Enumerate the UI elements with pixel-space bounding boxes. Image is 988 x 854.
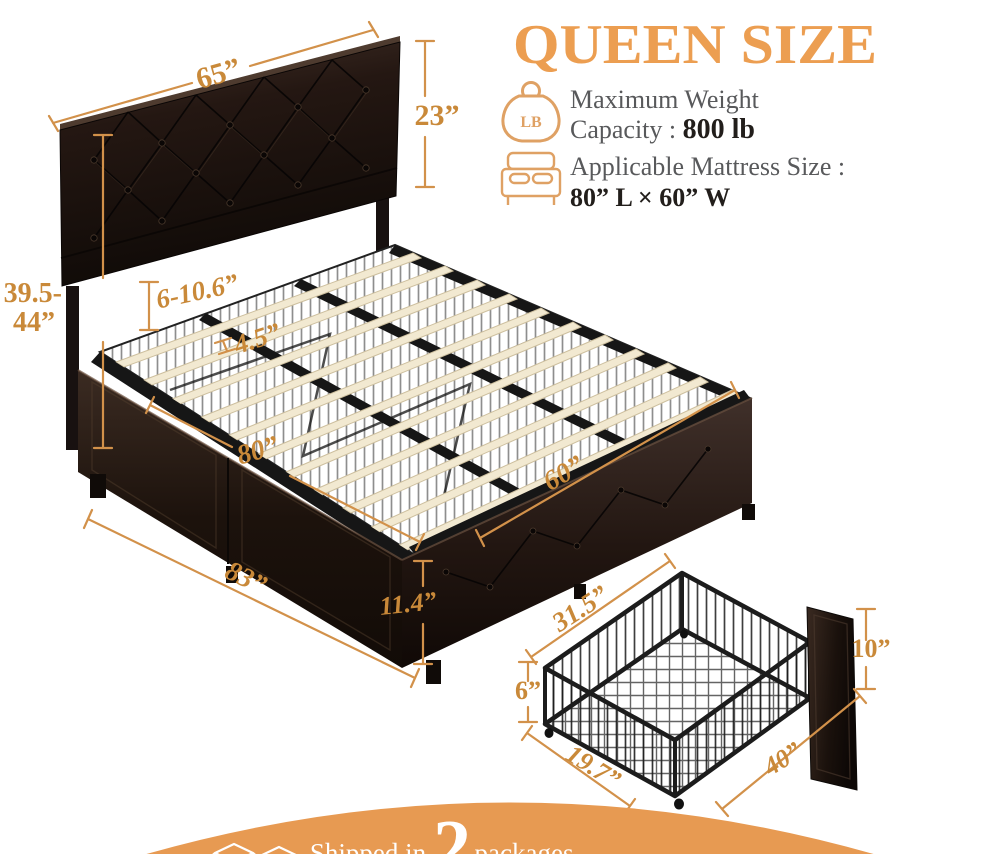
dim-drawer-basket-height: 6” <box>515 662 541 722</box>
drawer-illustration: 31.5” 6” 10” 19.7” 40” <box>515 554 891 816</box>
mattress-spec-value: 80” L × 60” W <box>570 183 730 212</box>
dim-headboard-panel-height: 23” <box>415 41 460 187</box>
dim-drawer-panel-height: 10” <box>852 609 891 689</box>
mattress-size-icon <box>502 153 560 205</box>
mattress-spec-label: Applicable Mattress Size : <box>570 152 845 181</box>
weight-capacity-value: 800 lb <box>683 114 755 145</box>
shipping-package-count: 2 <box>433 805 471 854</box>
product-diagram: 65” 23” 39.5- 44” 6-10.6” 4.5” 80” 60” <box>0 0 988 854</box>
shipping-text-suffix: packages <box>475 838 574 854</box>
dim-label-headboard-panel-height: 23” <box>415 99 460 132</box>
dim-label-total-height-line1: 39.5- <box>4 278 62 309</box>
page-title: QUEEN SIZE <box>513 14 877 76</box>
product-infographic: 65” 23” 39.5- 44” 6-10.6” 4.5” 80” 60” <box>0 0 988 854</box>
header-info: QUEEN SIZE LB Maximum Weight Capacity : … <box>502 14 877 212</box>
shipping-banner: Shipped in 2 packages <box>100 803 920 854</box>
weight-spec-line1: Maximum Weight <box>570 85 760 114</box>
dim-label-basket-height: 6” <box>515 676 541 705</box>
dim-label-panel-height: 10” <box>852 634 891 663</box>
headboard-left-leg <box>66 286 79 450</box>
dim-label-total-height-line2: 44” <box>13 307 55 338</box>
lb-weight-icon: LB <box>503 83 559 142</box>
dim-label-frame-height: 11.4” <box>378 586 438 621</box>
shipping-text-prefix: Shipped in <box>310 838 427 854</box>
weight-spec-line2: Capacity : 800 lb <box>570 114 755 145</box>
lb-icon-text: LB <box>520 114 542 131</box>
